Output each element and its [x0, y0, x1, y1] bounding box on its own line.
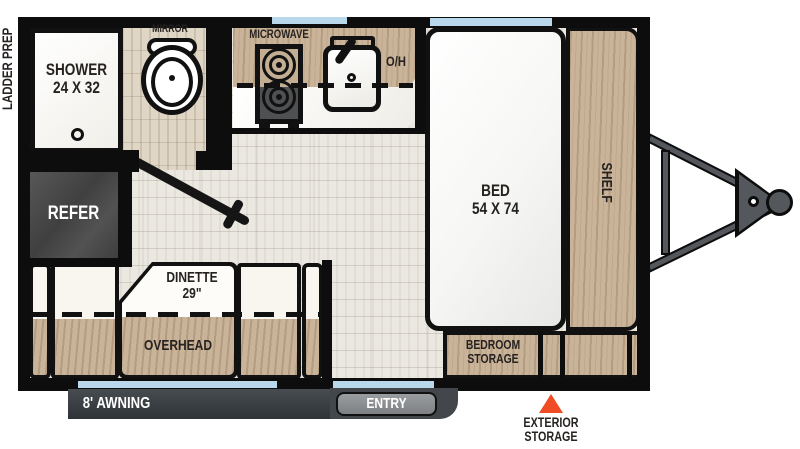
wall-kitchen-bed — [415, 17, 426, 134]
dinette-bench-left — [51, 263, 119, 379]
hitch-coupler-knob — [766, 189, 793, 216]
exterior-storage-label: EXTERIOR STORAGE — [511, 416, 591, 444]
dinette-overhead-dashed-line — [30, 312, 332, 317]
bed-label: BED 54 X 74 — [443, 182, 548, 218]
dinette-label: DINETTE 29" — [160, 270, 224, 302]
hitch-cross-member — [661, 150, 670, 255]
bedroom-storage-divider-2 — [560, 331, 565, 379]
floorplan-page: LADDER PREP SHOWER 24 X 32 MIRROR REFER — [0, 0, 800, 449]
exterior-storage-arrow-icon — [539, 394, 563, 413]
bed: BED 54 X 74 — [425, 27, 566, 331]
dinette-overhead-label: OVERHEAD — [136, 338, 219, 354]
wall-bathroom-kitchen — [206, 17, 232, 170]
entry-step: ENTRY — [336, 392, 437, 416]
shower-stall: SHOWER 24 X 32 — [30, 28, 123, 153]
bedroom-storage-label: BEDROOM STORAGE — [456, 338, 530, 365]
window-bed — [430, 18, 552, 26]
wall-refer-bottom — [18, 258, 132, 267]
sink-drain-icon — [347, 73, 356, 82]
entry-label: ENTRY — [348, 394, 426, 414]
wall-refer-right — [118, 150, 132, 265]
dinette-armrest-left — [29, 263, 51, 379]
toilet-bowl-inner — [151, 57, 193, 107]
window-dinette — [78, 381, 277, 388]
wall-bathroom-kitchen-foot — [196, 151, 210, 170]
wall-left — [18, 17, 30, 391]
dinette-bench-right — [237, 263, 301, 379]
shower-drain-icon — [71, 128, 84, 141]
awning-label: 8' AWNING — [68, 389, 289, 419]
shower-label: SHOWER 24 X 32 — [43, 61, 109, 97]
ladder-prep-label: LADDER PREP — [0, 12, 17, 125]
hitch-pin — [748, 196, 759, 207]
entry-door-window — [333, 381, 434, 388]
toilet-icon — [141, 45, 203, 115]
shelf-label: SHELF — [592, 149, 614, 218]
stove-burner-1-dot — [276, 62, 282, 68]
overhead-cabinet-label: O/H — [382, 54, 409, 69]
dinette-armrest-right — [302, 263, 323, 379]
wall-right — [637, 17, 650, 391]
kitchen-counter-dashed-edge — [237, 83, 413, 88]
refer-label: REFER — [37, 204, 110, 224]
window-kitchen — [272, 17, 347, 24]
bedroom-storage-divider-1 — [538, 331, 543, 379]
mirror-label: MIRROR — [143, 24, 197, 36]
microwave-label: MICROWAVE — [246, 28, 312, 41]
stove-burner-2-dot — [276, 94, 282, 100]
wall-dinette-entry — [322, 260, 332, 380]
toilet-drain-dot — [169, 75, 175, 81]
refrigerator: REFER — [28, 172, 119, 260]
shelf: SHELF — [566, 27, 640, 331]
awning-banner: 8' AWNING — [68, 389, 338, 419]
bedroom-storage-divider-3 — [627, 331, 632, 379]
kitchen-counter-front-line — [216, 128, 422, 134]
